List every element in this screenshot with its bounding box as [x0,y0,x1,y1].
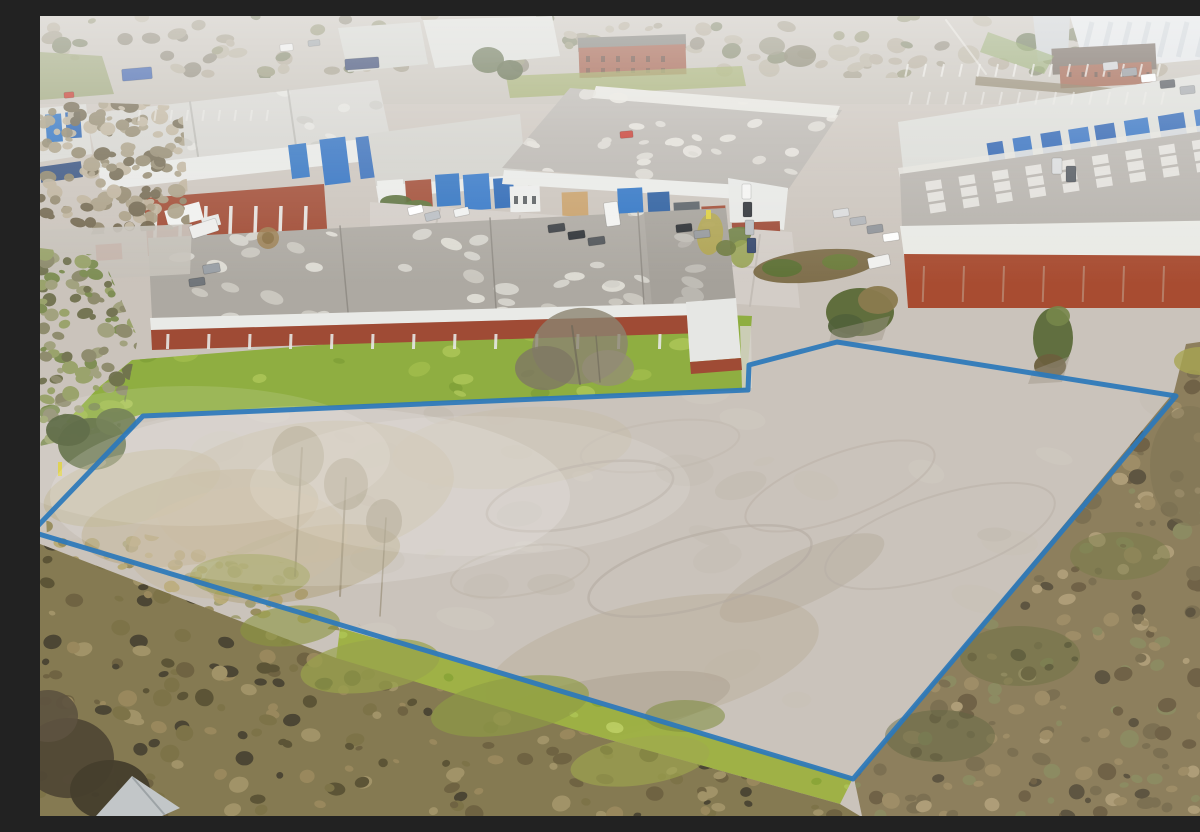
bare-tree-canopy-2 [515,346,575,390]
scrub-right-green-2 [1070,532,1170,580]
haze-overlay [40,16,1200,286]
aerial-photo-canvas [40,16,1200,816]
carpark-bush-1b [858,286,898,314]
aerial-listing-photo [40,16,1200,816]
carpark-bush-2c [1046,306,1070,326]
bare-tree-canopy-3 [582,350,634,386]
scrub-right-green-1 [960,626,1080,686]
left-warehouse-gable [686,298,741,362]
